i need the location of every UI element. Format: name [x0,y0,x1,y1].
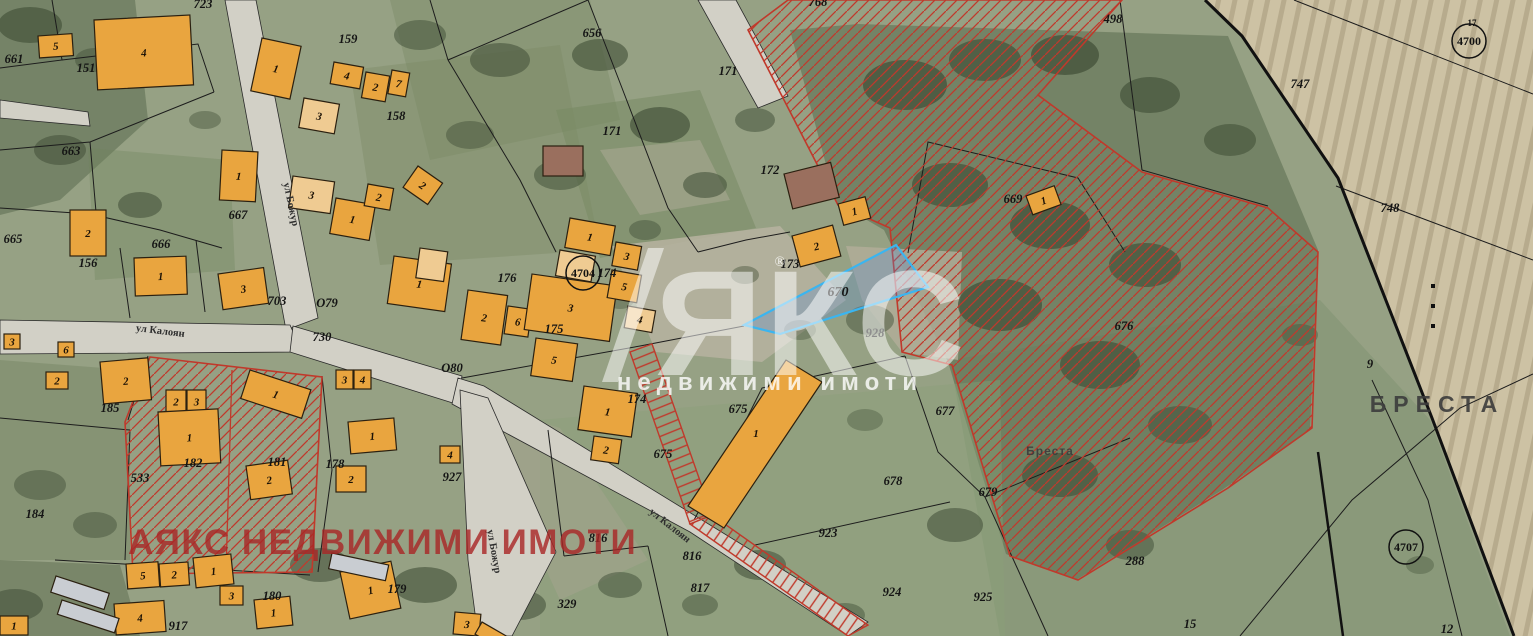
parcel-number: 329 [557,597,578,611]
parcel-number: 151 [77,61,96,75]
building: 4 [114,601,166,635]
building-footprint [416,248,448,282]
circled-number: 4704 [571,266,595,280]
boundary-dot [1431,324,1435,328]
building-number: 2 [347,474,354,486]
boundary-dot [1431,304,1435,308]
building: 3 [299,98,340,134]
building: 2 [46,372,68,389]
parcel-number: 178 [326,457,346,471]
parcel-number: 679 [979,485,999,499]
building: 5 [531,338,578,381]
building: 2 [159,562,190,587]
building: 4 [354,370,371,389]
building-number: 3 [193,397,200,409]
parcel-number: О79 [316,296,338,310]
circled-number: 4700 [1457,34,1481,48]
tree-canopy [1406,556,1434,574]
building: 2 [364,184,393,210]
tree-canopy [470,43,530,77]
parcel-number: 665 [4,232,23,246]
circled-number: 4707 [1394,540,1418,554]
tree-canopy [598,572,642,598]
parcel-number: 678 [884,474,904,488]
parcel-number: 175 [545,322,564,336]
map-canvas[interactable]: 5414273311222133622342311421252134111312… [0,0,1533,636]
parcel-number: 748 [1381,201,1401,215]
tree-canopy [189,111,221,129]
tree-canopy [682,594,718,616]
watermark-company-text: АЯКС НЕДВИЖИМИ ИМОТИ [128,523,637,562]
building-number: 1 [11,621,17,633]
parcel-number: 925 [974,590,993,604]
building-number: 2 [172,397,179,409]
building: 1 [0,616,28,635]
building-number: 6 [63,345,69,357]
tree-canopy [847,409,883,431]
building: 3 [218,268,269,310]
parcel-number: 156 [79,256,99,270]
parcel-number: 182 [184,456,203,470]
cadastral-map-svg: 5414273311222133622342311421252134111312… [0,0,1533,636]
parcel-number: 498 [1103,12,1124,26]
tree-canopy [572,39,628,71]
building: 4 [440,446,460,463]
registered-trademark-icon: ® [775,255,786,270]
parcel-number: 12 [1441,622,1454,636]
parcel-number: 171 [719,64,738,78]
boundary-dot [1431,284,1435,288]
tree-canopy [73,512,117,538]
parcel-number: 723 [194,0,213,11]
parcel-number: 159 [339,32,359,46]
parcel-number: 184 [26,507,45,521]
parcel-number: 185 [101,401,120,415]
parcel-number: 176 [498,271,518,285]
parcel-number: 179 [388,582,408,596]
parcel-number: 676 [1115,319,1135,333]
tree-canopy [14,470,66,500]
building: 3 [220,586,243,605]
tree-canopy [1204,124,1256,156]
parcel-number: 703 [268,294,287,308]
circled-top-number: 17 [1468,18,1478,28]
watermark-subtext: недвижими имоти [617,369,923,396]
parcel-number: 15 [1184,617,1197,631]
building: 5 [38,34,73,58]
parcel-number: 171 [603,124,622,138]
building: 3 [4,334,20,349]
parcel-number: 917 [169,619,189,633]
parcel-number: 667 [229,208,249,222]
building-number: 1 [369,431,376,443]
parcel-number: О80 [441,361,463,375]
building: 1 [348,418,397,454]
building: 1 [134,256,187,296]
tree-canopy [735,108,775,132]
parcel-number: 288 [1125,554,1146,568]
tree-canopy [394,20,446,50]
parcel-number: 663 [62,144,81,158]
building: 4 [330,62,363,89]
building: 2 [591,436,622,464]
parcel-number: 656 [583,26,603,40]
building-number: 1 [186,432,192,444]
parcel-number: 923 [819,526,838,540]
building: 3 [336,370,353,389]
parcel-number: 180 [263,589,283,603]
parcel-number: 768 [809,0,829,9]
tree-canopy [1120,77,1180,113]
place-name: БРЕСТА [1370,391,1504,417]
tree-canopy [927,508,983,542]
tree-canopy [683,172,727,198]
tree-canopy [118,192,162,218]
building-number: 4 [140,47,148,59]
building [543,146,583,176]
building: 2 [361,72,389,102]
parcel-number: 817 [691,581,711,595]
building: 2 [461,290,508,345]
building-number: 3 [341,375,348,387]
tree-canopy [630,107,690,143]
place-name: Бреста [1026,444,1074,458]
parcel-number: 158 [387,109,407,123]
parcel-number: 174 [598,266,617,280]
building-number: 4 [359,375,366,387]
parcel-number: 927 [443,470,463,484]
building: 4 [94,15,194,90]
building-number: 3 [228,591,235,603]
building-number: 2 [53,376,60,388]
parcel-number: 730 [313,330,333,344]
parcel-number: 661 [5,52,24,66]
building [416,248,448,282]
parcel-number: 172 [761,163,780,177]
building: 2 [100,358,151,404]
building: 7 [388,70,410,97]
building: 2 [70,210,106,256]
building-number: 3 [8,337,15,349]
parcel-number: 675 [654,447,673,461]
building-number: 1 [236,171,242,183]
tree-canopy [629,220,661,240]
building-number: 4 [446,450,453,462]
building-number: 1 [753,428,759,440]
parcel-number: 747 [1291,77,1311,91]
building: 5 [126,562,160,589]
parcel-number: 9 [1367,357,1374,371]
parcel-number: 924 [883,585,902,599]
building-footprint [543,146,583,176]
parcel-number: 666 [152,237,172,251]
building-number: 2 [84,228,91,240]
parcel-number: 669 [1004,192,1024,206]
building: 1 [219,150,258,202]
parcel-number: 816 [683,549,703,563]
building: 2 [166,390,186,413]
building: 6 [58,342,74,357]
building-number: 1 [158,271,164,283]
parcel-number: 181 [268,455,287,469]
parcel-number: 533 [131,471,150,485]
